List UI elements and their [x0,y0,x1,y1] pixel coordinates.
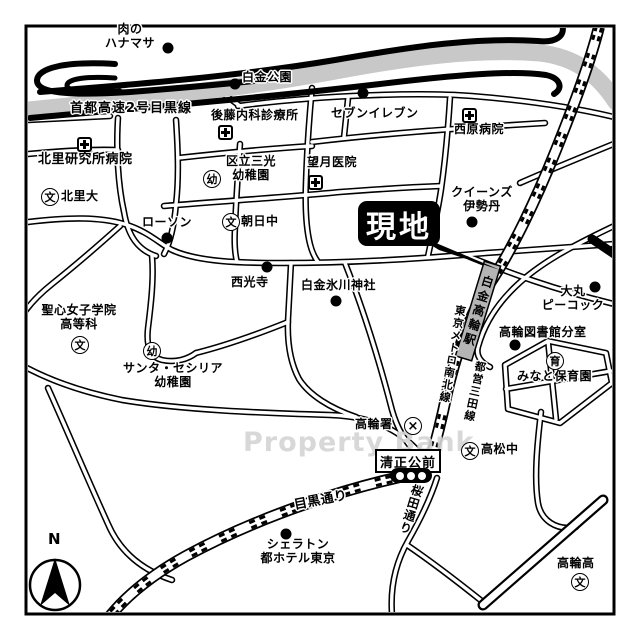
poi-dot-shirokane-park [230,79,241,90]
hospital-icon-nishihara [462,108,477,123]
label-daimaru-peacock: 大丸 ピーコック [537,285,609,313]
school-icon-takamatsu: 文 [461,442,479,460]
label-takanawa-police: 高輪署 [355,418,393,432]
traffic-signal-icon [390,468,432,483]
poi-dot-hikawa-shrine [331,296,342,307]
nursery-icon-minato: 育 [546,352,564,370]
label-hanamasa: 肉の ハナマサ [92,23,168,51]
compass-rose [30,558,80,610]
site-callout: 現地 [358,201,440,246]
label-goto-clinic: 後藤内科診療所 [211,109,299,123]
label-minato-nursery: みなと保育園 [517,370,592,384]
label-nishihara-hospital: 西原病院 [454,123,504,137]
school-icon-asahi: 文 [222,213,240,231]
label-takanawa-library: 高輪図書館分室 [499,326,587,340]
label-seishin-school: 聖心女子学院 高等科 [33,304,125,332]
label-kitasato-univ: 北里大 [61,190,99,204]
school-icon-takanawa-hs: 文 [571,573,589,591]
hospital-icon-kitasato [77,137,92,152]
poi-dot-takanawa-library [510,340,521,351]
label-sanko-kindergarten: 区立三光 幼稚園 [221,155,281,183]
poi-dot-queens-isetan [467,217,478,228]
location-map: Property Bank 肉の ハナマサ 白金公園 首都高速2号目黒線 後藤内… [0,0,640,640]
kindergarten-icon-sanko: 幼 [203,170,221,188]
school-icon-seishin: 文 [71,336,89,354]
compass-north-label: N [48,531,61,548]
label-mochizuki-clinic: 望月医院 [307,156,357,170]
poi-dot-saikoji [262,262,273,273]
kindergarten-icon-santa: 幼 [143,342,161,360]
poi-dot-lawson [162,233,173,244]
label-takamatsu-jhs: 高松中 [481,443,519,457]
label-hikawa-shrine: 白金氷川神社 [301,279,376,293]
hospital-icon-mochizuki [308,175,323,190]
label-lawson: ローソン [142,216,192,230]
label-saikoji: 西光寺 [231,276,269,290]
police-station-icon: × [404,417,422,435]
label-seven-eleven: セブンイレブン [331,107,419,121]
label-queens-isetan: クイーンズ 伊勢丹 [444,186,520,214]
school-icon-kitasato-univ: 文 [41,188,59,206]
label-kitasato-hospital: 北里研究所病院 [38,153,133,168]
label-takanawa-hs: 高輪高 [557,557,595,571]
label-sheraton: シェラトン 都ホテル東京 [249,538,347,566]
label-shirokane-park: 白金公園 [242,71,292,85]
label-santa-cecilia: サンタ・セシリア 幼稚園 [114,362,232,390]
label-asahi-jhs: 朝日中 [241,215,279,229]
hospital-icon-goto [218,125,233,140]
poi-dot-seven-eleven [358,88,369,99]
label-expressway: 首都高速2号目黒線 [70,102,192,117]
